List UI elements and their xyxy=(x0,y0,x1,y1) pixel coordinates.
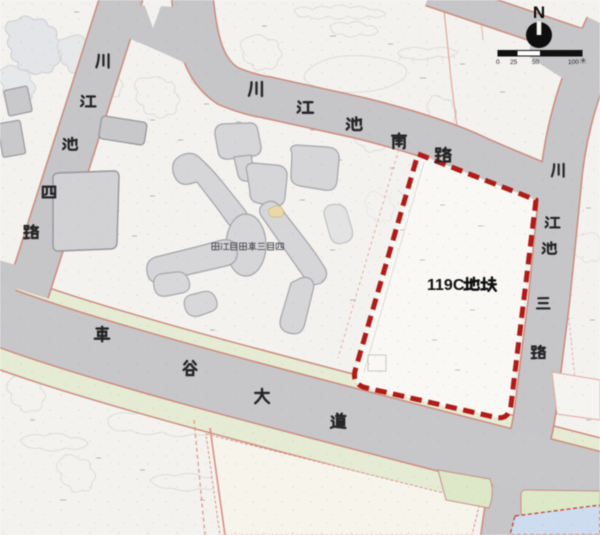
svg-text:119C: 119C xyxy=(427,277,465,294)
svg-text:50: 50 xyxy=(532,59,540,66)
svg-text:0: 0 xyxy=(496,59,500,66)
svg-text:100: 100 xyxy=(568,59,579,66)
svg-text:N: N xyxy=(533,3,545,22)
svg-text:25: 25 xyxy=(510,59,518,66)
